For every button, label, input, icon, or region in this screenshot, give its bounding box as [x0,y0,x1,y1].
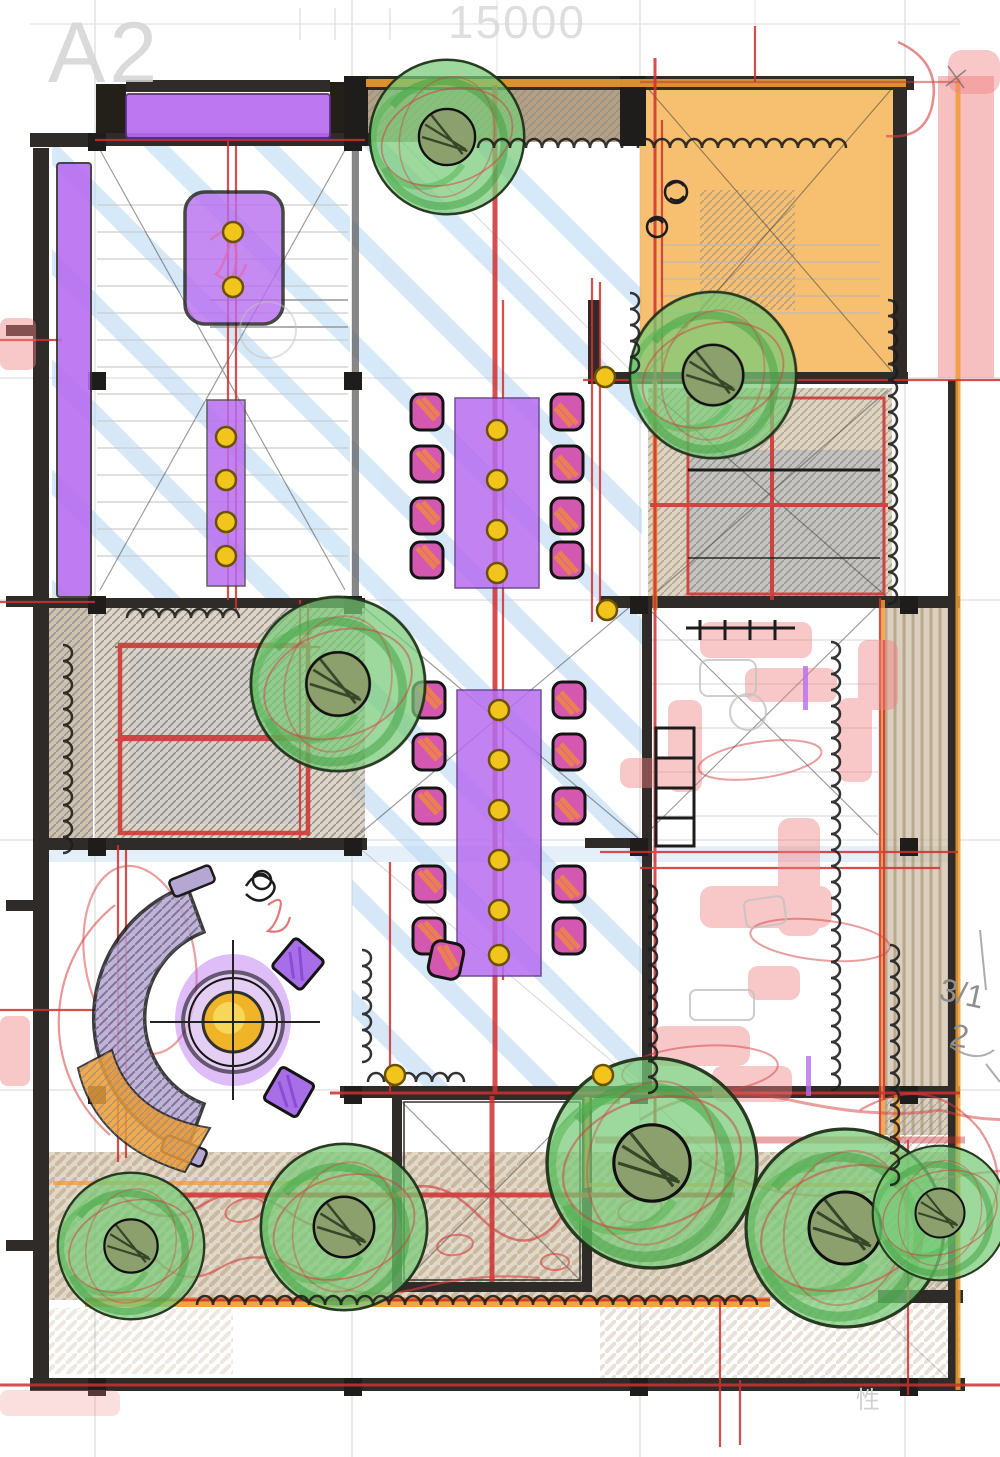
chair [411,394,443,430]
chair [551,446,583,482]
conference-table-2 [457,690,541,976]
tree [369,59,526,215]
purple-counter-left [57,163,91,597]
top-dimension-label: 15000 [448,0,586,48]
chair [413,866,445,902]
chair [551,498,583,534]
chair [413,734,445,770]
chair [553,788,585,824]
pink-margin-band [938,76,994,378]
tree [57,1172,205,1320]
stamp-character: 性 [856,1387,880,1414]
chair [553,866,585,902]
chair [413,788,445,824]
tree [546,1057,759,1269]
tree [872,1145,1000,1281]
chair [411,498,443,534]
meeting-pod [185,192,283,324]
tree [260,1143,429,1311]
chair [551,394,583,430]
chair [551,542,583,578]
tree [250,596,427,772]
chair [553,918,585,954]
chair [427,939,466,981]
floor-plan-sketch: A2 15000 3/1 2 性 [0,0,1000,1457]
chair [553,682,585,718]
drawing-sheet: A2 15000 3/1 2 性 [0,0,1000,1457]
chair [411,446,443,482]
stool [263,1066,315,1118]
tree [629,291,798,459]
chair [411,542,443,578]
chair [553,734,585,770]
sheet-size-label: A2 [48,5,161,101]
